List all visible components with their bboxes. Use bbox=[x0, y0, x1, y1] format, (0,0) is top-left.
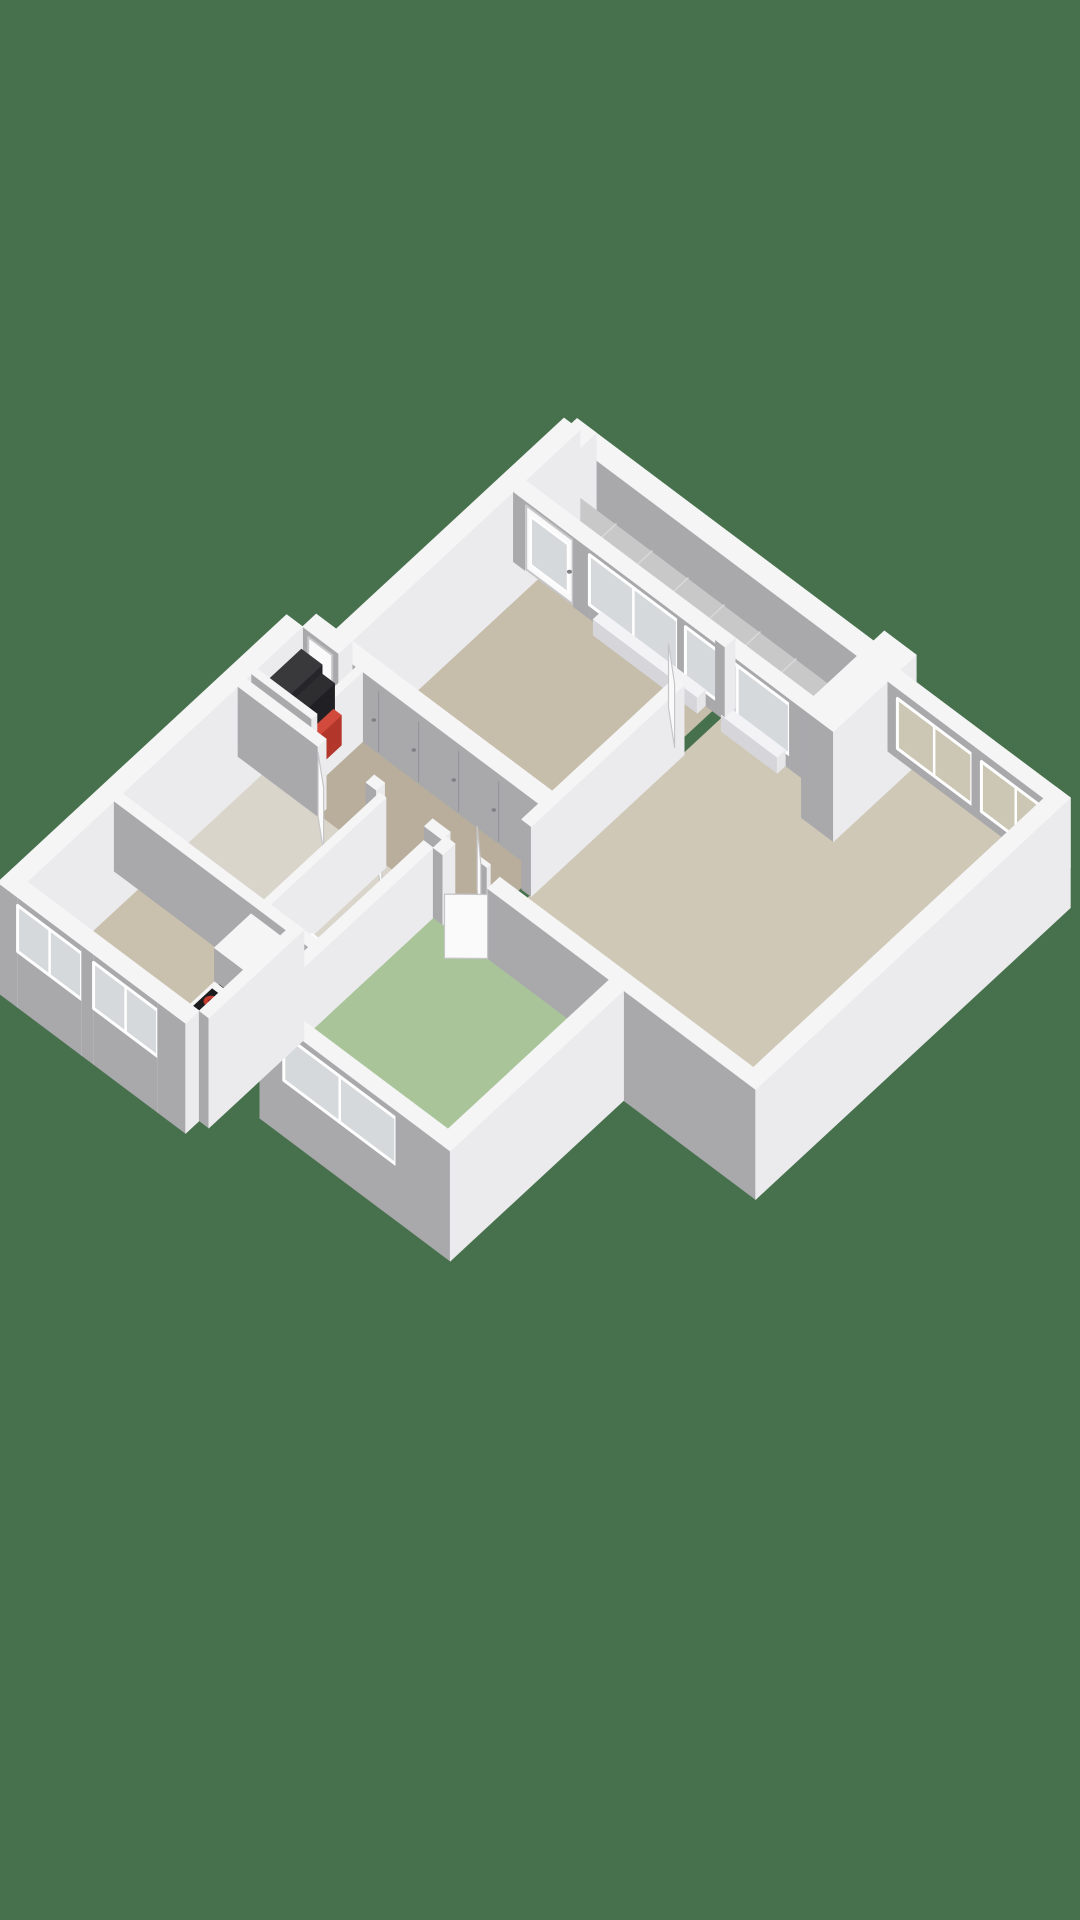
floor-plan-page bbox=[0, 0, 1080, 1920]
floor-plan-3d bbox=[0, 0, 1080, 1920]
bedroom2-wall-seg-a bbox=[715, 630, 735, 717]
kitchen-sw-jamb-right bbox=[158, 990, 200, 1134]
balcony-door-handle bbox=[567, 570, 572, 574]
bedroom1-door-leaf bbox=[445, 894, 488, 958]
